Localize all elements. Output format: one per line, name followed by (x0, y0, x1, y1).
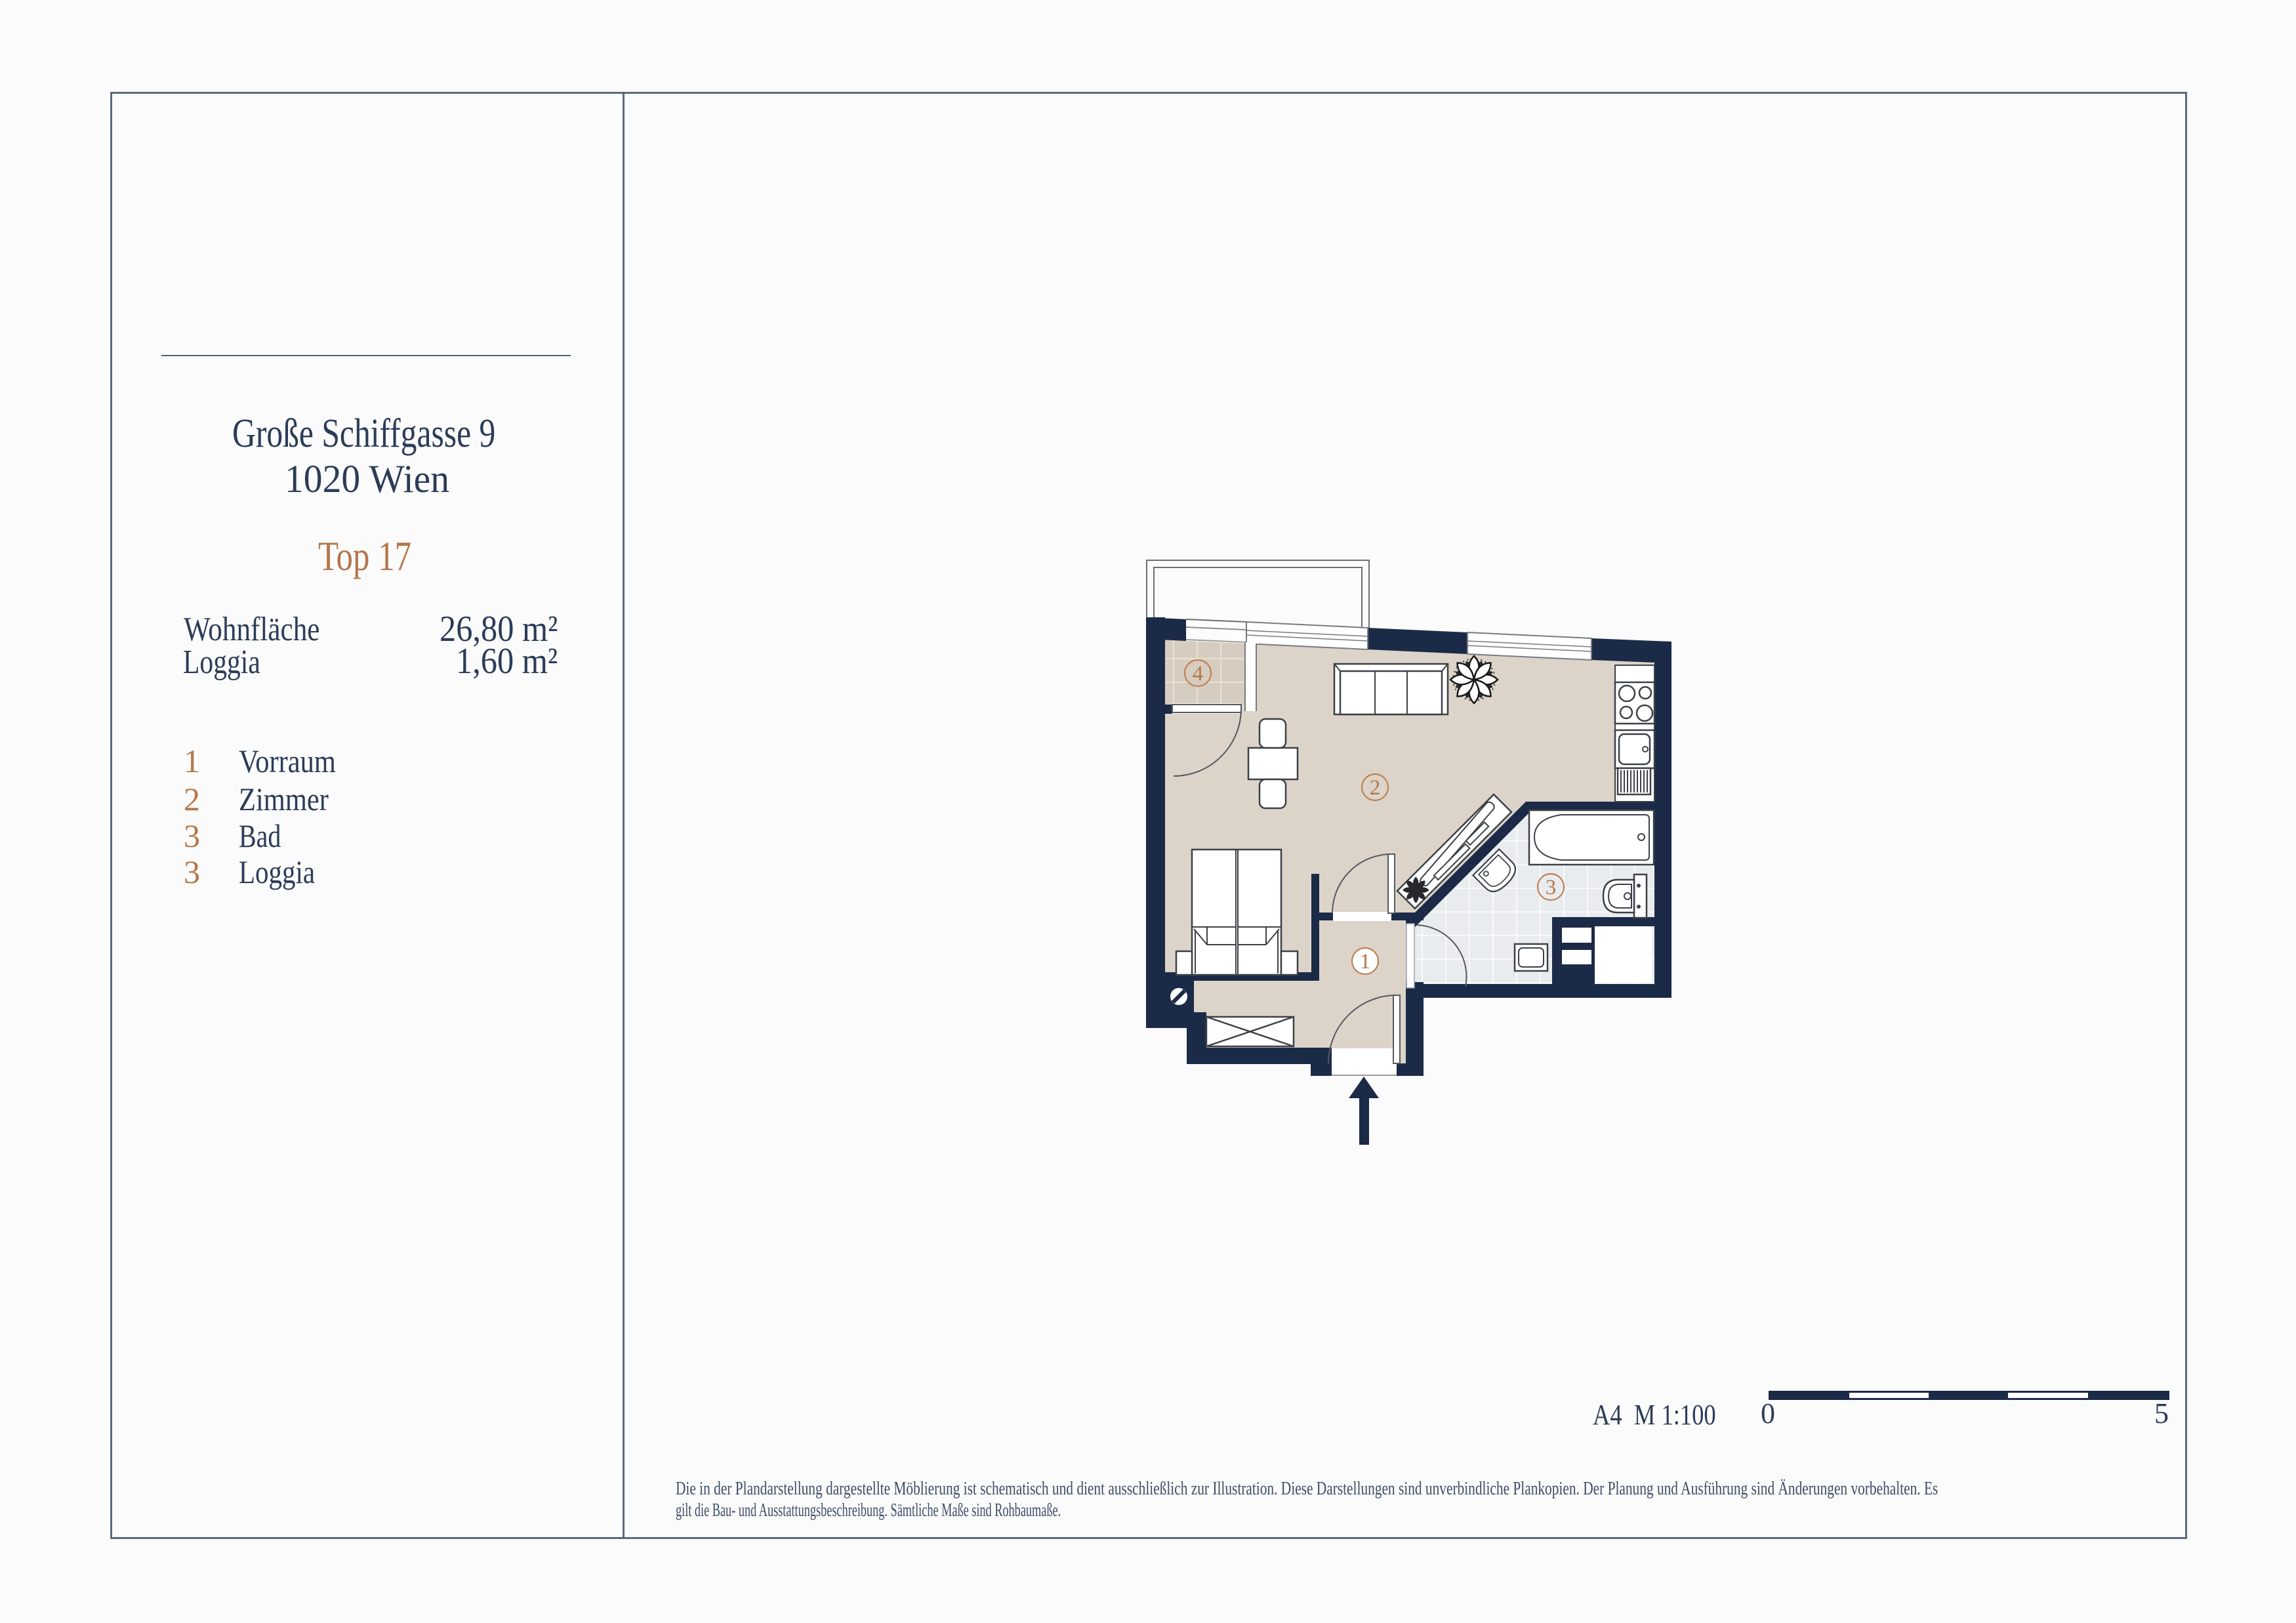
svg-text:2: 2 (1370, 776, 1381, 800)
svg-text:3: 3 (1546, 876, 1557, 899)
svg-text:1: 1 (1360, 950, 1371, 974)
svg-text:4: 4 (1193, 662, 1204, 686)
